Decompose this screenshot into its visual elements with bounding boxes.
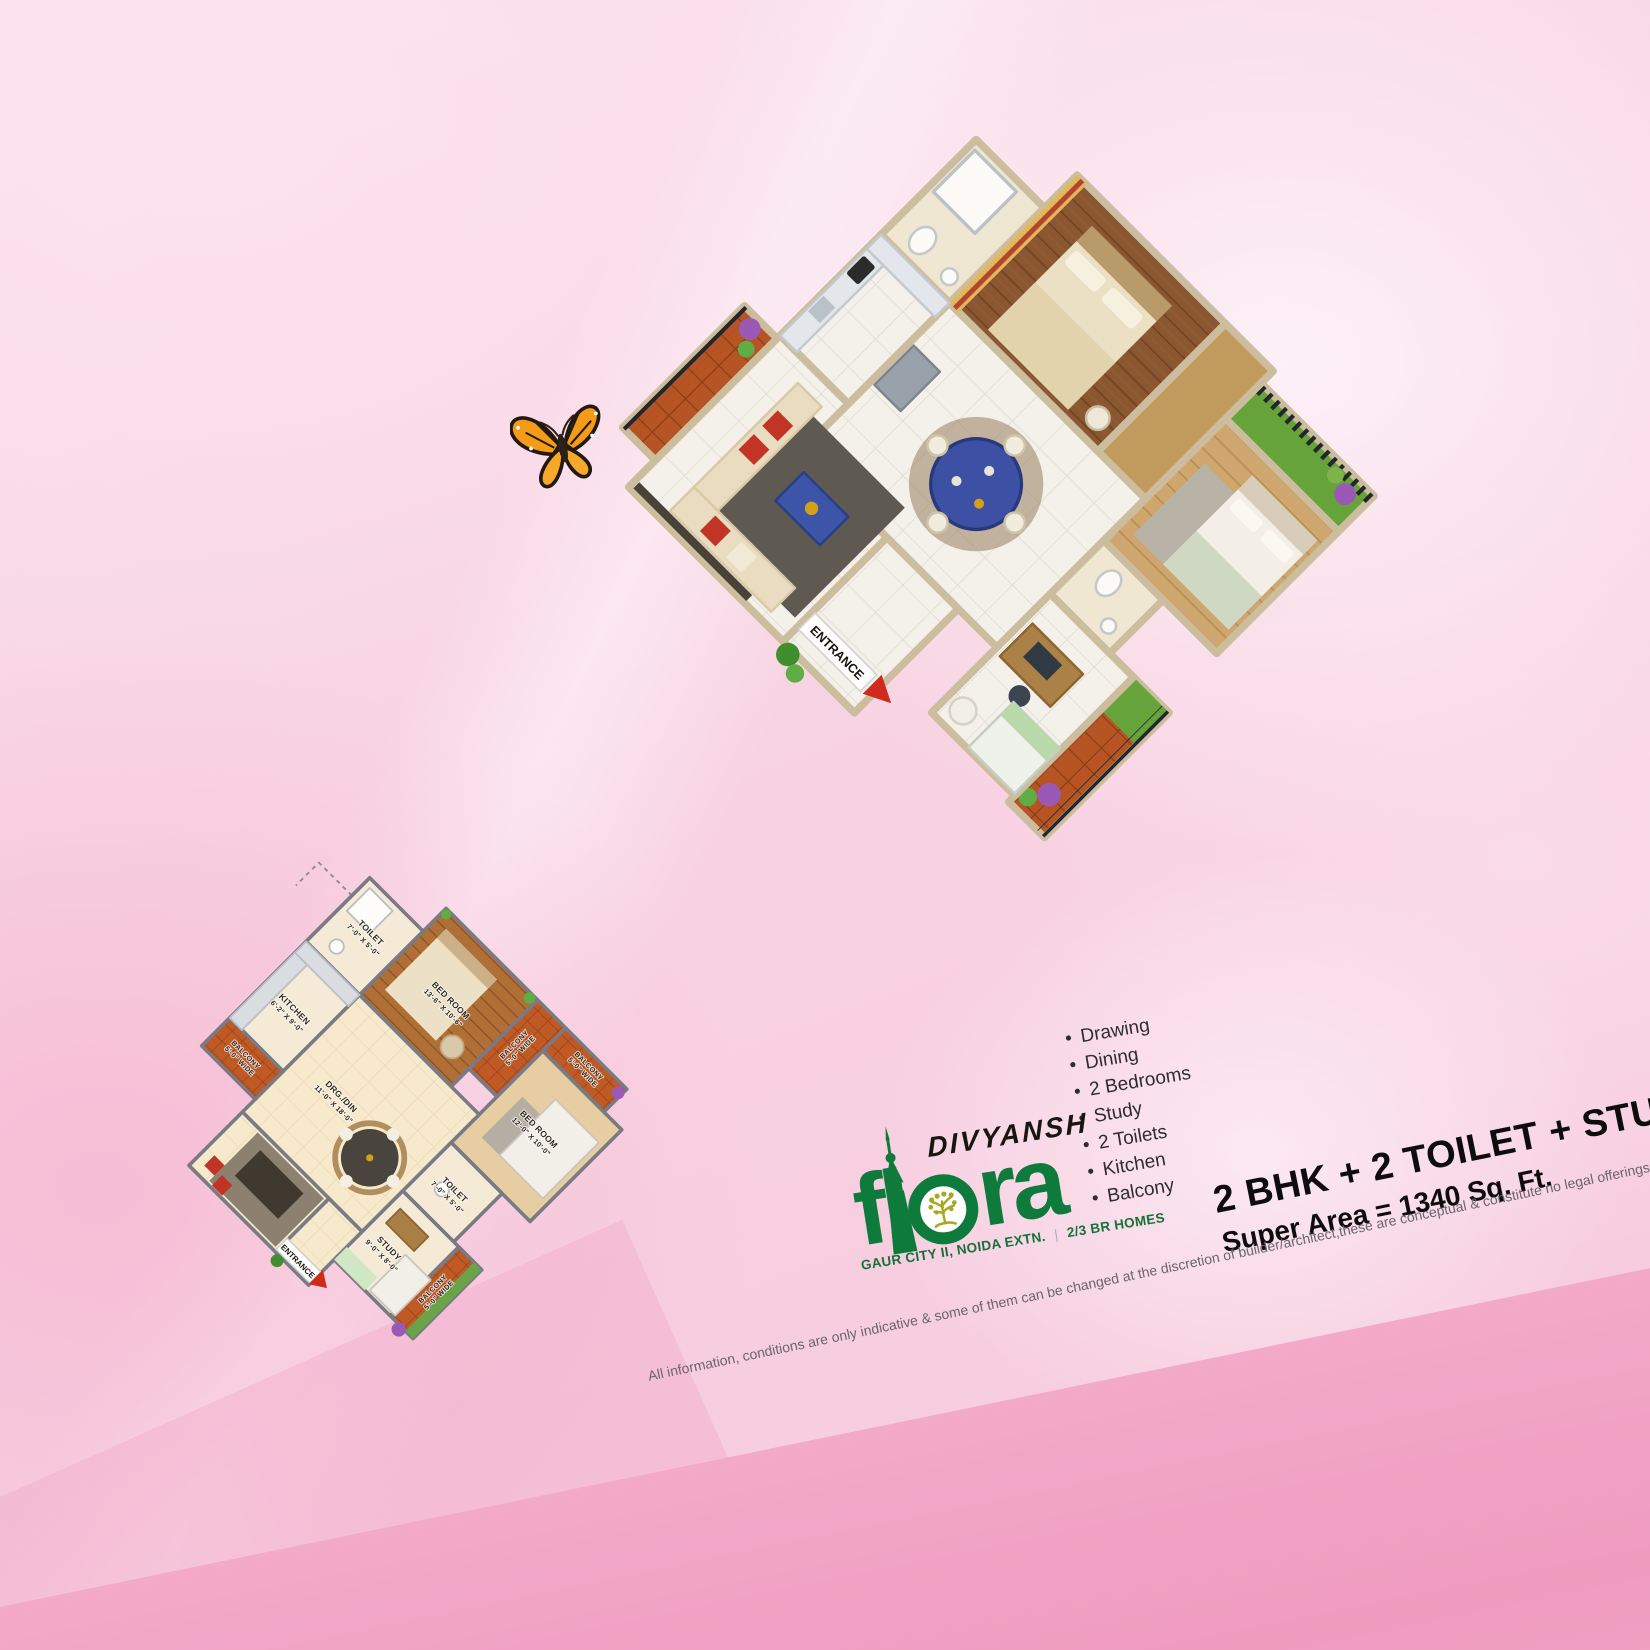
brochure-page: ENTRANCE <box>0 0 1650 1650</box>
plan3d-rotated-group: ENTRANCE <box>579 74 1392 887</box>
floor-plan-2d: TOILET 7'-0" X 5'-0" BED ROOM 13'-6" X 1… <box>105 800 665 1440</box>
olive-tree-icon <box>920 1186 966 1232</box>
plan2d-rotated-group: TOILET 7'-0" X 5'-0" BED ROOM 13'-6" X 1… <box>105 821 646 1372</box>
floor-plan-3d: ENTRANCE <box>535 25 1435 965</box>
butterfly-icon <box>510 396 614 492</box>
